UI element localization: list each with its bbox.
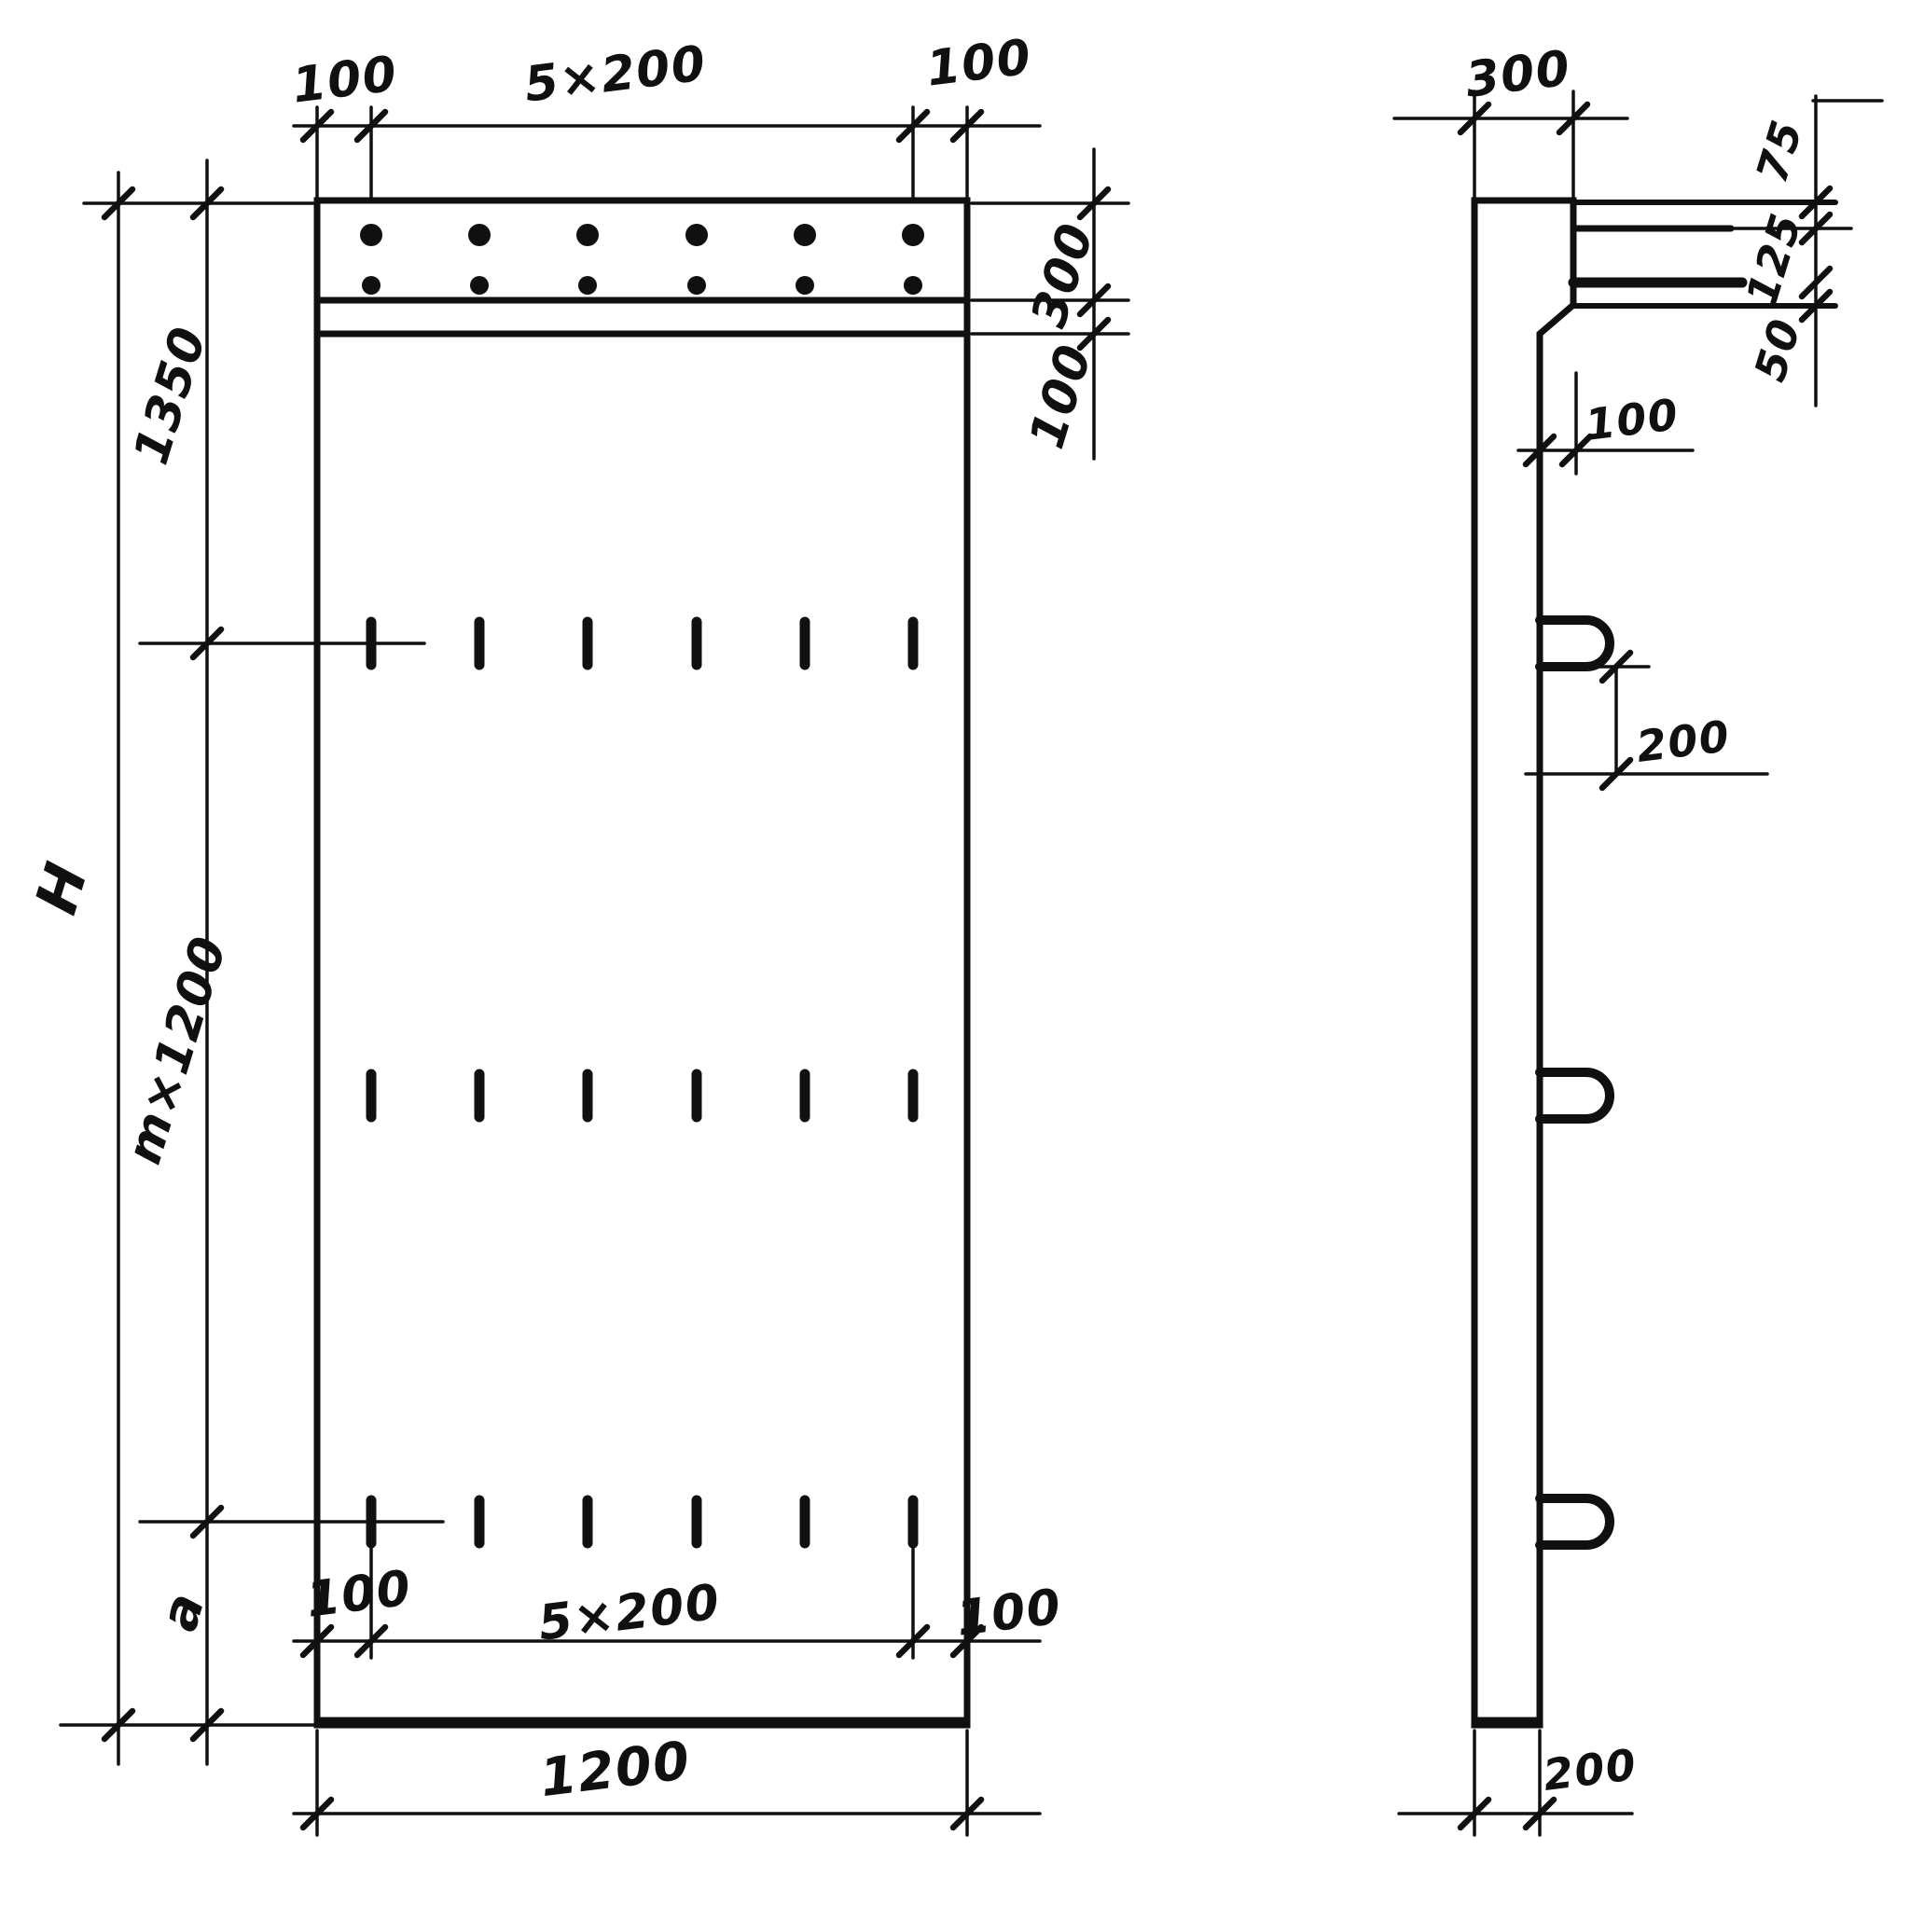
side-bottom-dimension: 200: [1399, 1731, 1640, 1835]
anchor-dot: [468, 224, 491, 246]
dim-label-overall-height: H: [21, 854, 101, 921]
dim-label-top-center: 5×200: [521, 35, 710, 113]
panel-technical-drawing: 100 5×200 100 300 100: [0, 0, 1910, 1932]
front-right-dimension: 300 100: [972, 149, 1128, 459]
dim-label-bar-bottom-offset: 50: [1744, 312, 1810, 387]
dim-label-bottom-thickness: 200: [1541, 1739, 1640, 1801]
dim-label-ledge-height: 100: [1019, 338, 1103, 455]
dim-label-step: 100: [1583, 389, 1682, 450]
front-width-dimension: 1200: [294, 1731, 1040, 1835]
dim-label-top-left: 100: [289, 46, 401, 114]
side-loop-dimension: 200: [1526, 653, 1767, 788]
anchor-dot: [796, 276, 814, 295]
dim-label-repeat-zone: m×1200: [117, 930, 239, 1170]
anchor-dot: [902, 224, 924, 246]
dim-label-top-thickness: 300: [1462, 40, 1574, 108]
front-bottom-dimension: 100 5×200 100: [294, 1546, 1065, 1658]
anchor-dot: [576, 224, 599, 246]
anchor-dot: [360, 224, 382, 246]
side-top-dimension: 300: [1394, 40, 1627, 198]
dim-label-bottom-right: 100: [953, 1579, 1065, 1647]
dim-label-overall-width: 1200: [537, 1731, 695, 1809]
anchor-dot: [794, 224, 816, 246]
anchor-dots: [360, 224, 924, 295]
slot-marks: [371, 622, 913, 1543]
anchor-dot: [687, 276, 706, 295]
dim-label-top-zone: 1350: [123, 320, 217, 471]
front-view: 100 5×200 100 300 100: [21, 29, 1128, 1835]
side-step-dimension: 100: [1518, 373, 1693, 474]
anchor-dot: [904, 276, 922, 295]
front-top-dimension: 100 5×200 100: [289, 29, 1040, 198]
side-right-dimension: 75 125 50: [1736, 96, 1882, 406]
anchor-dot: [578, 276, 597, 295]
side-view: 300 75 125 50 100: [1394, 40, 1882, 1835]
dim-label-loop-offset: 200: [1634, 711, 1733, 772]
dim-label-top-right: 100: [923, 29, 1035, 97]
anchor-dot: [362, 276, 381, 295]
loop: [1540, 620, 1610, 667]
dim-label-bar-top-offset: 75: [1746, 114, 1812, 188]
loop: [1540, 1498, 1610, 1545]
anchor-dot: [470, 276, 489, 295]
loop: [1540, 1072, 1610, 1119]
front-left-dimension: H 1350 m×1200 a: [21, 160, 443, 1764]
dim-label-bottom-left: 100: [303, 1560, 415, 1628]
anchor-dot: [685, 224, 708, 246]
panel-outline: [317, 200, 967, 1725]
lifting-loops: [1540, 620, 1610, 1545]
